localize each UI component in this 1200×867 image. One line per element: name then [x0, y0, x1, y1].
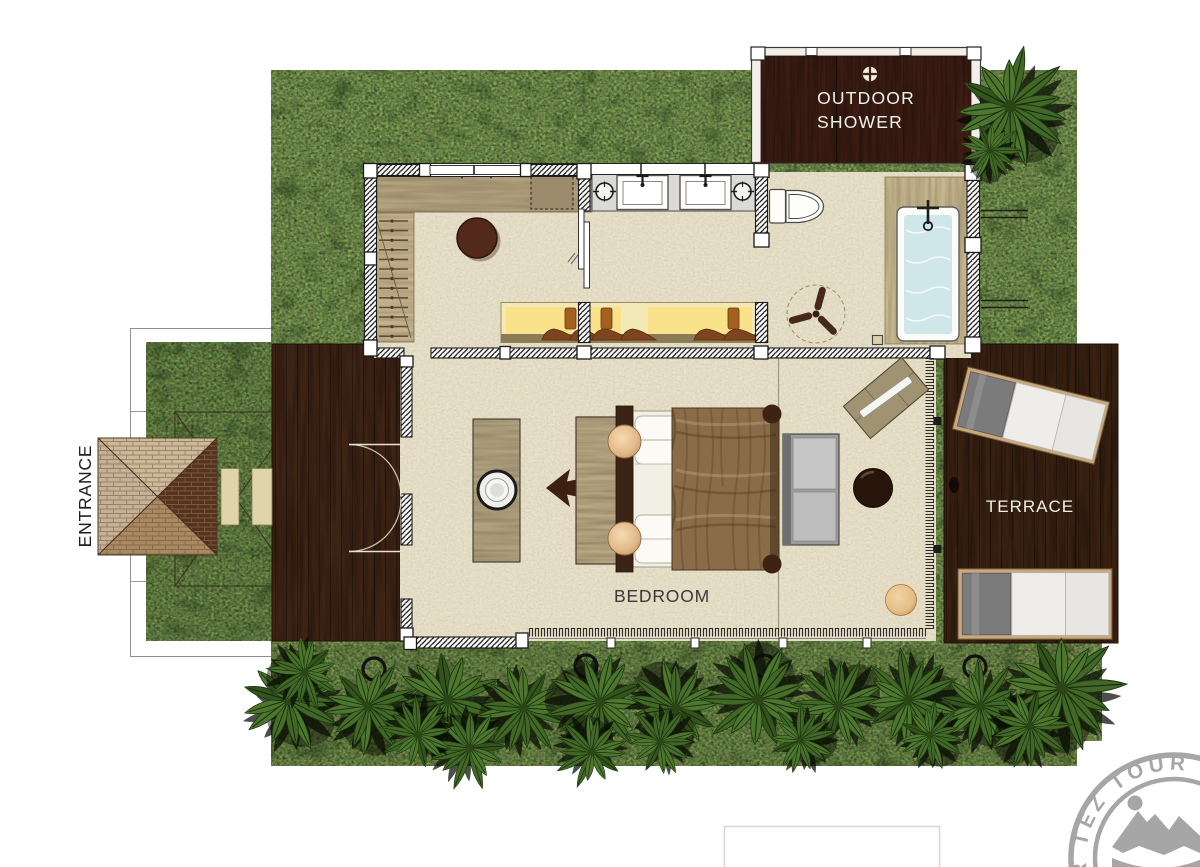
svg-text:SHOWER: SHOWER	[817, 112, 903, 132]
svg-text:OUTDOOR: OUTDOOR	[817, 88, 915, 108]
svg-text:ENTRANCE: ENTRANCE	[75, 445, 95, 548]
svg-text:TERRACE: TERRACE	[986, 497, 1074, 516]
svg-text:BEDROOM: BEDROOM	[614, 586, 710, 606]
